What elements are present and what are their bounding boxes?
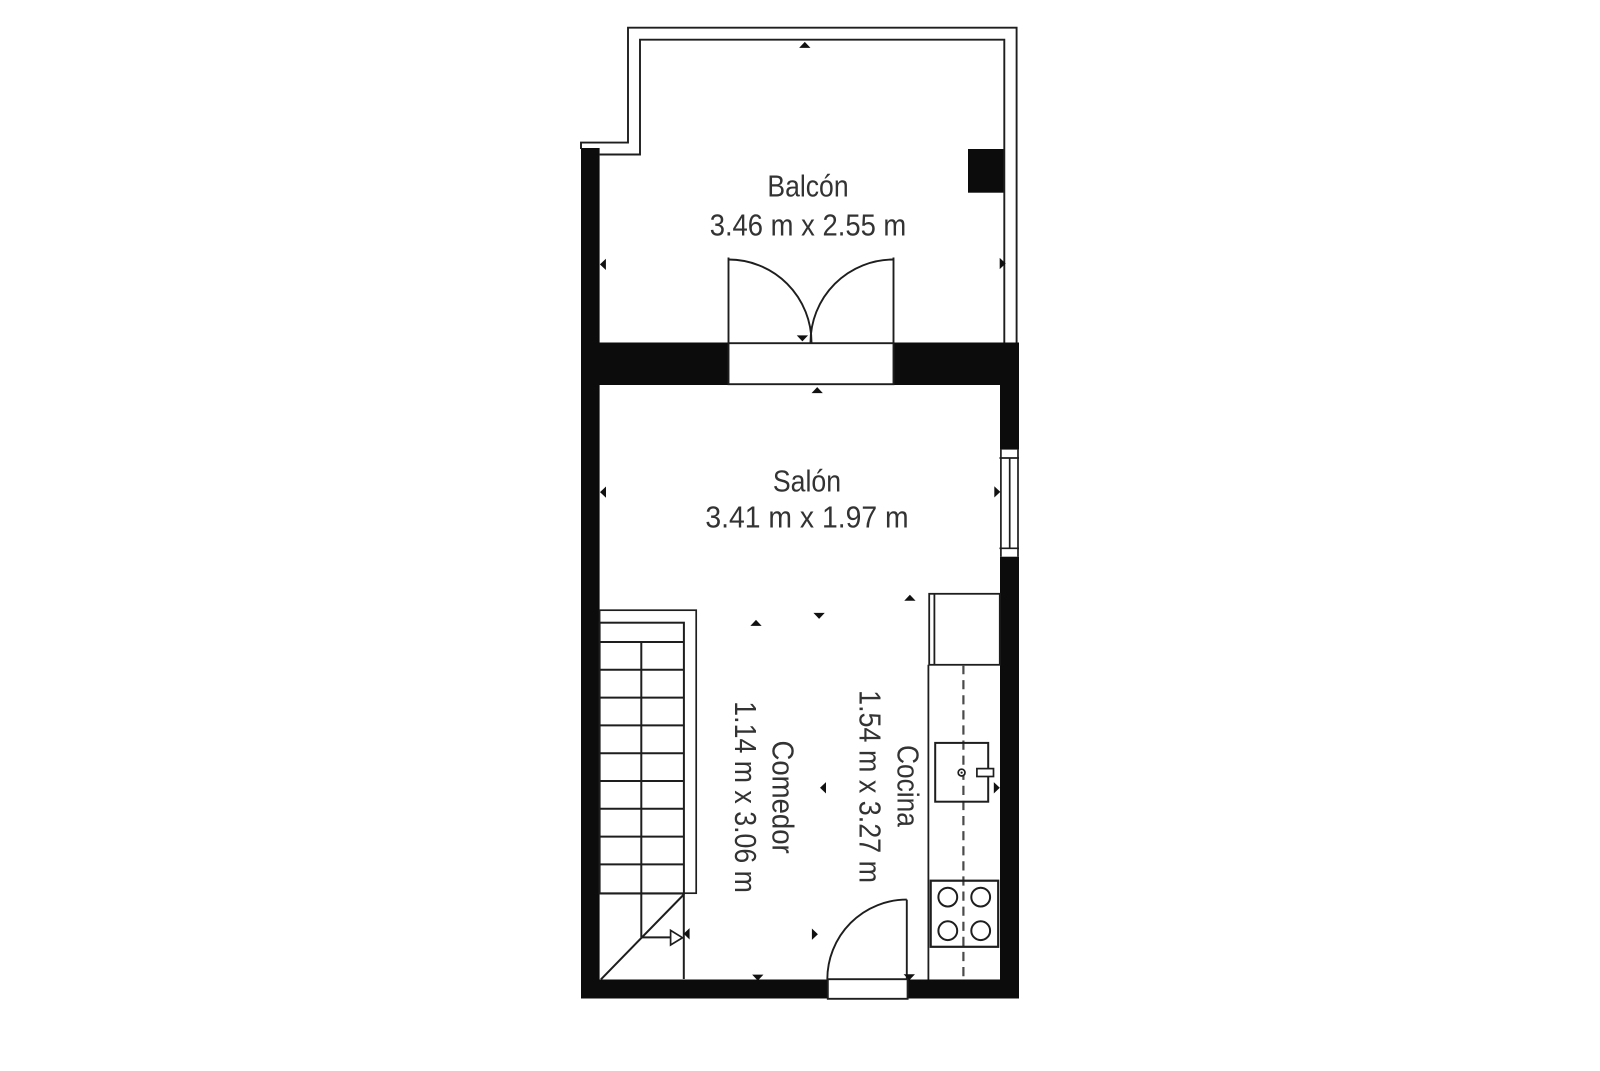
svg-text:Balcón: Balcón — [767, 169, 848, 204]
svg-text:1.14 m x 3.06 m: 1.14 m x 3.06 m — [728, 701, 763, 893]
svg-text:Salón: Salón — [773, 463, 841, 498]
svg-text:3.46 m x 2.55 m: 3.46 m x 2.55 m — [710, 208, 907, 243]
svg-text:1.54 m x 3.27 m: 1.54 m x 3.27 m — [853, 690, 888, 883]
svg-text:Comedor: Comedor — [766, 741, 801, 854]
svg-text:Cocina: Cocina — [890, 745, 925, 828]
svg-text:3.41 m x 1.97 m: 3.41 m x 1.97 m — [705, 500, 908, 535]
